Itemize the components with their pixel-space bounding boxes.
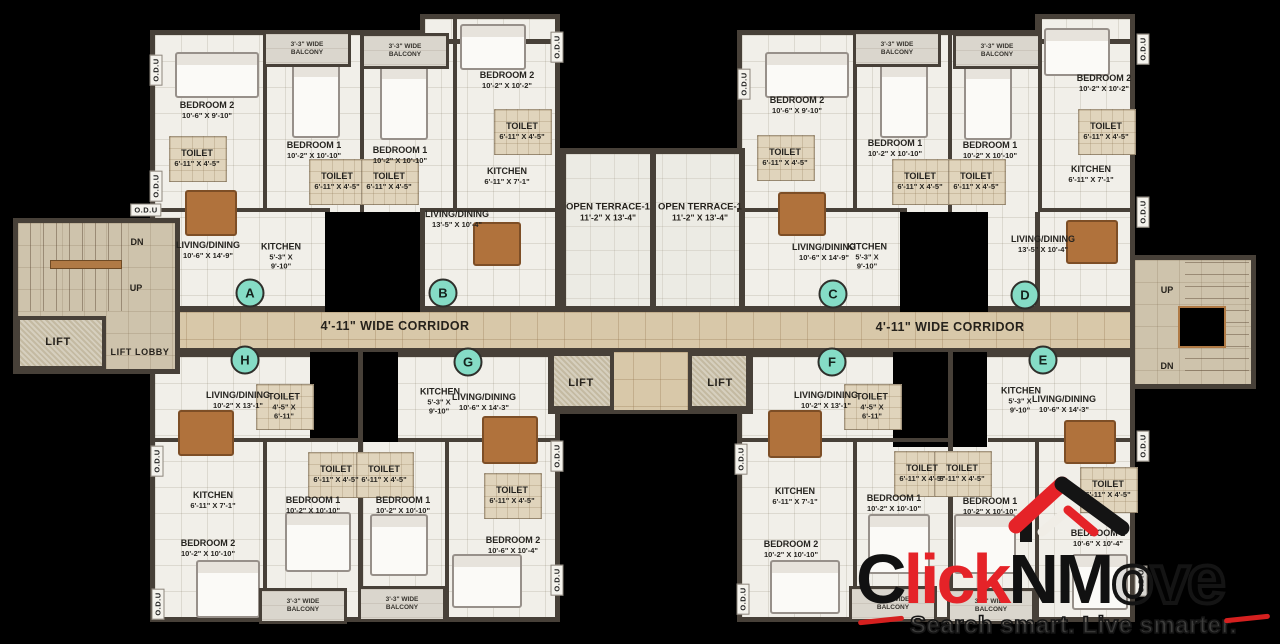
- logo-house-icon: [1008, 468, 1130, 548]
- logo-part-lick: lick: [904, 540, 1009, 618]
- interior-wall: [453, 14, 457, 212]
- dining-table: [768, 410, 822, 458]
- odu-label: O.D.U: [551, 440, 564, 471]
- room-label-g-bedroom-1: BEDROOM 110'-2" X 10'-10": [376, 495, 431, 515]
- odu-label: O.D.U: [551, 31, 564, 62]
- room-label-g-living-dining: LIVING/DINING10'-6" X 14'-3": [452, 392, 516, 412]
- unit-badge-a: A: [236, 279, 265, 308]
- room-label-a-bedroom-2: BEDROOM 210'-6" X 9'-10": [180, 100, 235, 120]
- stair-up-label: UP: [1161, 285, 1174, 295]
- odu-label: O.D.U: [735, 443, 748, 474]
- bed: [292, 64, 340, 138]
- room-label-a-bedroom-1: BEDROOM 110'-2" X 10'-10": [287, 140, 342, 160]
- corridor-label: 4'-11" WIDE CORRIDOR: [321, 319, 470, 333]
- room-label-a-living-dining: LIVING/DINING10'-6" X 14'-9": [176, 240, 240, 260]
- logo-part-c: C: [856, 540, 904, 618]
- right-stair-void: [1178, 306, 1226, 348]
- balcony-strip: 3'-3" WIDEBALCONY: [358, 586, 446, 622]
- bed: [285, 512, 351, 572]
- lift-label: LIFT: [707, 377, 733, 389]
- room-label-h-bedroom-1: BEDROOM 110'-2" X 10'-10": [286, 495, 341, 515]
- room-label-e-living-dining: LIVING/DINING10'-6" X 14'-3": [1032, 394, 1096, 414]
- odu-label: O.D.U: [1137, 430, 1150, 461]
- odu-label: O.D.U: [152, 588, 165, 619]
- balcony-strip: 3'-3" WIDEBALCONY: [263, 31, 351, 67]
- room-label-a-toilet: TOILET6'-11" X 4'-5": [174, 148, 219, 168]
- balcony-label: 3'-3" WIDEBALCONY: [291, 41, 324, 57]
- balcony-label: 3'-3" WIDEBALCONY: [386, 596, 419, 612]
- bed: [370, 514, 428, 576]
- odu-label: O.D.U: [150, 54, 163, 85]
- floor-plan-canvas: LIFT LOBBY ClickNMove Search smart. Live…: [0, 0, 1280, 644]
- bed: [460, 24, 526, 70]
- odu-label: O.D.U: [737, 583, 750, 614]
- room-label-a-kitchen: KITCHEN5'-3" X 9'-10": [260, 242, 302, 271]
- odu-label: O.D.U: [1137, 33, 1150, 64]
- room-label-h-toilet: TOILET4'-5" X 6'-11": [265, 392, 303, 421]
- duct-cutout: [325, 212, 420, 312]
- logo-tagline: Search smart. Live smarter.: [910, 612, 1237, 640]
- unit-badge-g: G: [454, 348, 483, 377]
- balcony-strip: 3'-3" WIDEBALCONY: [259, 588, 347, 624]
- room-label-g-bedroom-2: BEDROOM 210'-6" X 10'-4": [486, 535, 541, 555]
- balcony-label: 3'-3" WIDEBALCONY: [287, 598, 320, 614]
- dining-table: [482, 416, 538, 464]
- clicknmove-logo: ClickNMove Search smart. Live smarter.: [852, 466, 1280, 644]
- room-label-f-toilet: TOILET4'-5" X 6'-11": [853, 392, 891, 421]
- odu-label: O.D.U: [551, 564, 564, 595]
- bed: [196, 560, 260, 618]
- unit-badge-e: E: [1029, 346, 1058, 375]
- room-label-c-toilet: TOILET6'-11" X 4'-5": [897, 171, 942, 191]
- duct-cutout: [900, 212, 988, 312]
- bed: [452, 554, 522, 608]
- room-label-h-bedroom-2: BEDROOM 210'-2" X 10'-10": [181, 538, 236, 558]
- odu-label: O.D.U: [1137, 196, 1150, 227]
- room-label-c-bedroom-2: BEDROOM 210'-6" X 9'-10": [770, 95, 825, 115]
- room-label-b-bedroom-1: BEDROOM 110'-2" X 10'-10": [373, 145, 428, 165]
- room-label-b-toilet: TOILET6'-11" X 4'-5": [499, 121, 544, 141]
- duct-cutout: [893, 352, 987, 447]
- bed: [770, 560, 840, 614]
- interior-wall: [1038, 208, 1135, 212]
- room-label-b-kitchen: KITCHEN6'-11" X 7'-1": [484, 166, 529, 186]
- room-label-f-living-dining: LIVING/DINING10'-2" X 13'-1": [794, 390, 858, 410]
- unit-badge-f: F: [818, 348, 847, 377]
- interior-wall: [150, 208, 330, 212]
- room-label-h-kitchen: KITCHEN6'-11" X 7'-1": [190, 490, 235, 510]
- room-label-f-bedroom-2: BEDROOM 210'-2" X 10'-10": [764, 539, 819, 559]
- room-label-d-living-dining: LIVING/DINING13'-5" X 10'-4": [1011, 234, 1075, 254]
- unit-badge-b: B: [429, 279, 458, 308]
- dining-table: [1064, 420, 1116, 464]
- room-label-c-kitchen: KITCHEN5'-3" X 9'-10": [846, 242, 888, 271]
- bed: [765, 52, 849, 98]
- terrace-divider-wall: [650, 148, 656, 312]
- unit-badge-h: H: [231, 346, 260, 375]
- logo-part-ove: ove: [1111, 540, 1223, 618]
- dining-table: [778, 192, 826, 236]
- room-label-b-bedroom-2: BEDROOM 210'-2" X 10'-2": [480, 70, 535, 90]
- open-terrace-label: OPEN TERRACE-111'-2" X 13'-4": [658, 202, 742, 223]
- room-label-d-bedroom-1: BEDROOM 110'-2" X 10'-10": [963, 140, 1018, 160]
- open-terrace-label: OPEN TERRACE-111'-2" X 13'-4": [566, 202, 650, 223]
- logo-wordmark: ClickNMove: [856, 544, 1223, 614]
- bed: [880, 64, 928, 138]
- room-label-g-toilet: TOILET6'-11" X 4'-5": [361, 464, 406, 484]
- room-label-d-toilet: TOILET6'-11" X 4'-5": [953, 171, 998, 191]
- room-label-b-living-dining: LIVING/DINING13'-5" X 10'-4": [425, 209, 489, 229]
- stair-up-label: UP: [130, 283, 143, 293]
- room-label-b-toilet: TOILET6'-11" X 4'-5": [366, 171, 411, 191]
- stair-dn-label: DN: [131, 237, 144, 247]
- dining-table: [178, 410, 234, 456]
- corridor-label: 4'-11" WIDE CORRIDOR: [876, 320, 1025, 334]
- room-label-h-toilet: TOILET6'-11" X 4'-5": [313, 464, 358, 484]
- room-label-a-toilet: TOILET6'-11" X 4'-5": [314, 171, 359, 191]
- odu-label: O.D.U: [150, 170, 163, 201]
- bed: [380, 66, 428, 140]
- room-label-d-kitchen: KITCHEN6'-11" X 7'-1": [1068, 164, 1113, 184]
- odu-label: O.D.U: [130, 204, 161, 217]
- odu-label: O.D.U: [738, 68, 751, 99]
- room-label-d-bedroom-2: BEDROOM 210'-2" X 10'-2": [1077, 73, 1132, 93]
- balcony-strip: 3'-3" WIDEBALCONY: [953, 33, 1041, 69]
- left-stair-rail: [50, 260, 122, 269]
- balcony-label: 3'-3" WIDEBALCONY: [881, 41, 914, 57]
- dining-table: [185, 190, 237, 236]
- lift-label: LIFT: [568, 377, 594, 389]
- balcony-label: 3'-3" WIDEBALCONY: [981, 43, 1014, 59]
- unit-badge-d: D: [1011, 281, 1040, 310]
- room-label-c-bedroom-1: BEDROOM 110'-2" X 10'-10": [868, 138, 923, 158]
- room-label-g-toilet: TOILET6'-11" X 4'-5": [489, 485, 534, 505]
- balcony-strip: 3'-3" WIDEBALCONY: [361, 33, 449, 69]
- room-label-d-toilet: TOILET6'-11" X 4'-5": [1083, 121, 1128, 141]
- bed: [964, 66, 1012, 140]
- bed: [1044, 28, 1110, 76]
- logo-part-nm: NM: [1008, 540, 1111, 618]
- lift-lobby-label: LIFT LOBBY: [111, 347, 170, 357]
- room-label-h-living-dining: LIVING/DINING10'-2" X 13'-1": [206, 390, 270, 410]
- balcony-strip: 3'-3" WIDEBALCONY: [853, 31, 941, 67]
- duct-cutout: [310, 352, 398, 442]
- lift-label: LIFT: [45, 336, 71, 348]
- bed: [175, 52, 259, 98]
- balcony-label: 3'-3" WIDEBALCONY: [389, 43, 422, 59]
- room-label-c-toilet: TOILET6'-11" X 4'-5": [762, 147, 807, 167]
- odu-label: O.D.U: [151, 445, 164, 476]
- room-label-f-kitchen: KITCHEN6'-11" X 7'-1": [772, 486, 817, 506]
- stair-dn-label: DN: [1161, 361, 1174, 371]
- unit-badge-c: C: [819, 280, 848, 309]
